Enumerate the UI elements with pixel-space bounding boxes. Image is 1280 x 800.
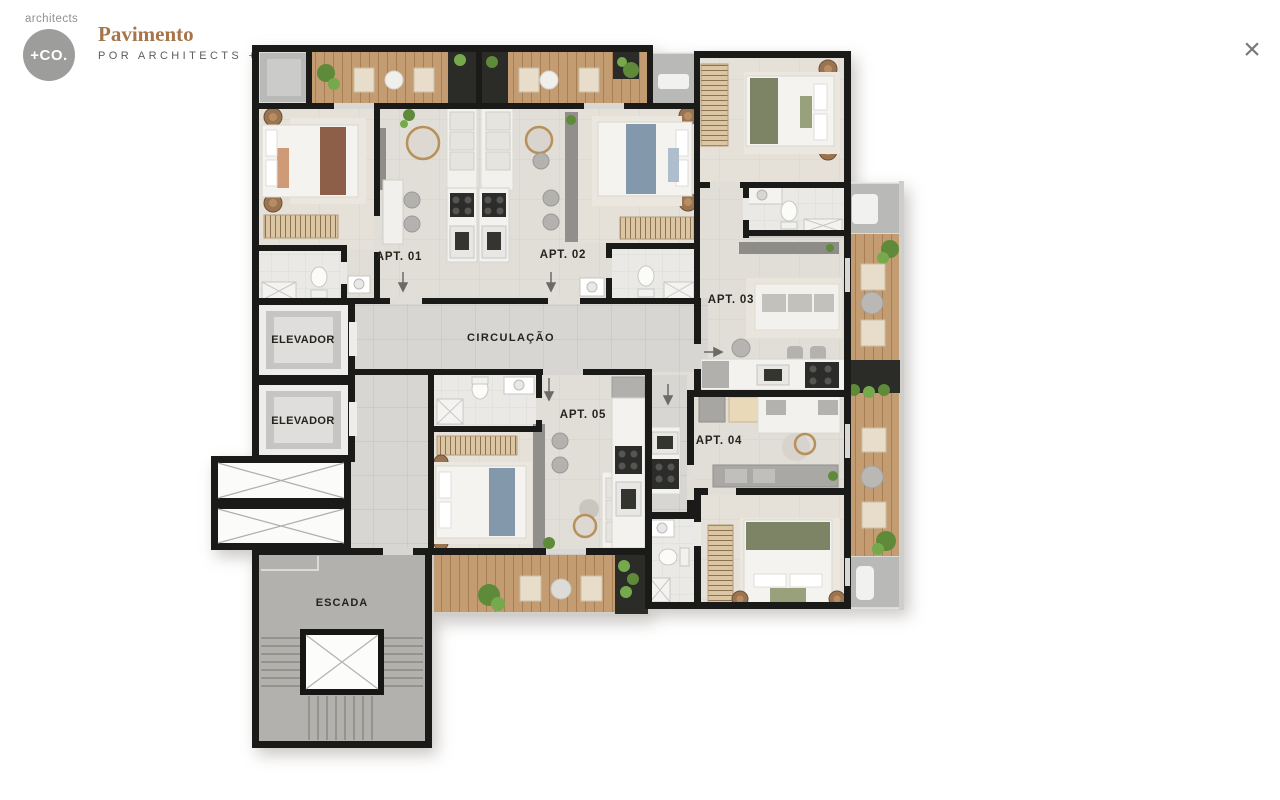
balcony-furniture (354, 68, 886, 601)
apt-05-furniture (434, 377, 645, 550)
label-elevator-2: ELEVADOR (271, 415, 335, 427)
floors (258, 57, 846, 605)
page-title: Pavimento (98, 22, 194, 47)
logo-architects-text: architects (25, 13, 78, 25)
floor-plan-canvas: APT. 01 APT. 02 APT. 03 APT. 04 APT. 05 … (0, 0, 1280, 800)
label-apt-02: APT. 02 (540, 249, 587, 261)
header: architects +CO. Pavimento POR ARCHITECTS… (0, 0, 1280, 90)
page-subtitle: POR ARCHITECTS +CO (98, 50, 282, 62)
label-stairs: ESCADA (316, 597, 368, 609)
apt-04-furniture (649, 395, 845, 607)
plants (317, 54, 899, 611)
logo-co-badge: +CO. (23, 29, 75, 81)
apt-02-furniture (479, 107, 697, 299)
label-apt-05: APT. 05 (560, 409, 607, 421)
plan-labels: APT. 01 APT. 02 APT. 03 APT. 04 APT. 05 … (271, 249, 754, 609)
walls (252, 45, 851, 609)
label-apt-04: APT. 04 (696, 435, 743, 447)
logo-co-text: +CO. (30, 47, 67, 64)
apt-03-furniture (701, 60, 846, 390)
duct-shafts (211, 456, 351, 550)
elevators (252, 298, 357, 462)
apt-01-furniture (262, 108, 477, 300)
close-icon: × (1243, 33, 1261, 66)
balconies (312, 50, 904, 616)
label-elevator-1: ELEVADOR (271, 334, 335, 346)
door-openings (334, 103, 850, 586)
page: architects +CO. Pavimento POR ARCHITECTS… (0, 0, 1280, 800)
label-apt-01: APT. 01 (376, 251, 423, 263)
entry-arrows (399, 272, 722, 404)
stairs (252, 548, 432, 748)
service-terraces (259, 52, 903, 608)
label-apt-03: APT. 03 (708, 294, 755, 306)
label-circulation: CIRCULAÇÃO (467, 331, 555, 344)
close-button[interactable]: × (1232, 30, 1272, 70)
